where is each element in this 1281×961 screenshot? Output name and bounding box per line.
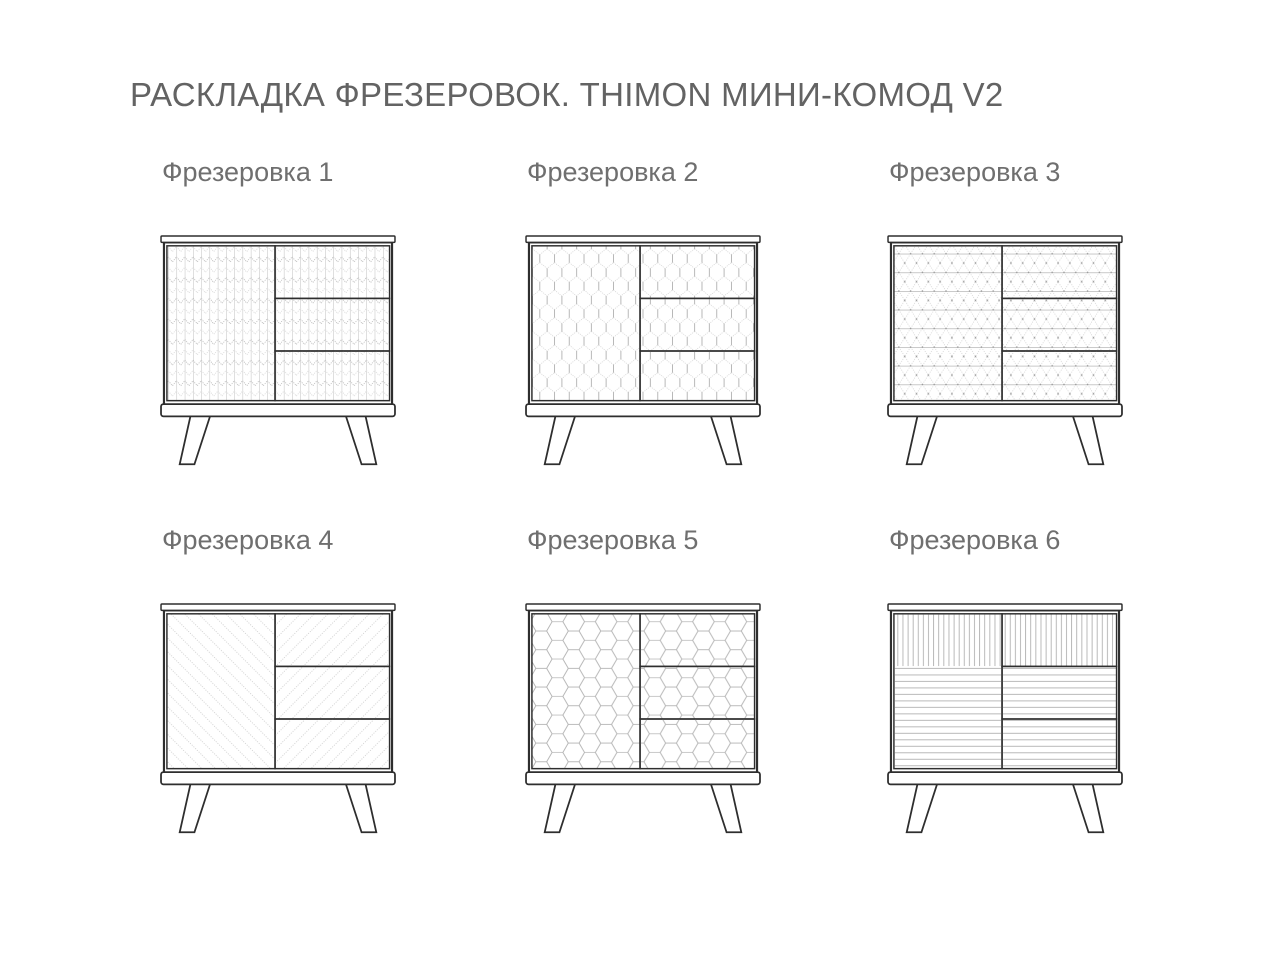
- variant-card-5: Фрезеровка 5: [525, 525, 887, 893]
- door-and-drawer-panels: [894, 246, 1117, 401]
- door-and-drawer-panels: [532, 246, 755, 401]
- drawer-panel-bottom: [1002, 719, 1117, 769]
- door-and-drawer-panels: [167, 246, 390, 401]
- variant-card-1: Фрезеровка 1: [160, 157, 525, 525]
- page-title: РАСКЛАДКА ФРЕЗЕРОВОК. THIMON МИНИ-КОМОД …: [130, 76, 1004, 114]
- variant-label: Фрезеровка 5: [527, 525, 887, 556]
- cabinet-drawing-diagonals: [160, 603, 396, 835]
- door-vertical-stripes-area: [895, 615, 1002, 667]
- variant-card-3: Фрезеровка 3: [887, 157, 1252, 525]
- door-and-drawer-panels: [532, 614, 755, 769]
- variant-label: Фрезеровка 1: [162, 157, 525, 188]
- cabinet-drawing-stripes: [887, 603, 1123, 835]
- variant-card-2: Фрезеровка 2: [525, 157, 887, 525]
- variant-label: Фрезеровка 4: [162, 525, 525, 556]
- cabinet-drawing-large-honeycomb: [525, 603, 761, 835]
- cabinet-drawing-herringbone: [160, 235, 396, 467]
- cabinet-drawing-cubes: [887, 235, 1123, 467]
- drawer-panel-middle: [1002, 666, 1117, 719]
- door-panel: [167, 614, 275, 769]
- variants-grid: Фрезеровка 1 Фрезеровка 2 Фрезеровка 3 Ф…: [160, 157, 1252, 893]
- variant-card-4: Фрезеровка 4: [160, 525, 525, 893]
- drawer-panel-top: [1002, 614, 1117, 667]
- cabinet-drawing-small-honeycomb: [525, 235, 761, 467]
- variant-card-6: Фрезеровка 6: [887, 525, 1252, 893]
- variant-label: Фрезеровка 6: [889, 525, 1252, 556]
- drawer-panels: [275, 614, 390, 769]
- variant-label: Фрезеровка 3: [889, 157, 1252, 188]
- variant-label: Фрезеровка 2: [527, 157, 887, 188]
- door-horizontal-stripes-area: [895, 666, 1002, 768]
